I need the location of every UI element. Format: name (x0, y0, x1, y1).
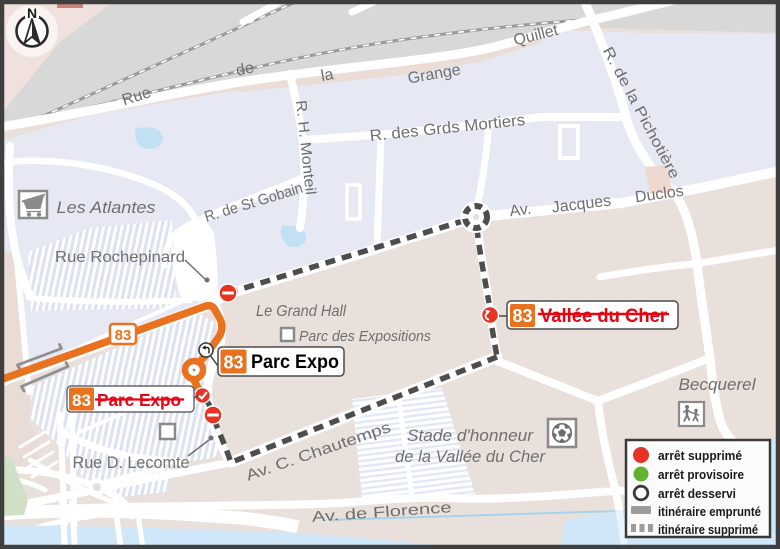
svg-text:Parc Expo: Parc Expo (251, 352, 339, 373)
svg-text:Parc des Expositions: Parc des Expositions (299, 328, 431, 345)
svg-text:de: de (235, 59, 256, 79)
svg-text:Rue D. Lecomte: Rue D. Lecomte (73, 453, 190, 472)
svg-text:arrêt provisoire: arrêt provisoire (658, 468, 744, 482)
svg-text:Le Grand Hall: Le Grand Hall (256, 303, 346, 320)
svg-text:Les Atlantes: Les Atlantes (57, 198, 157, 217)
svg-text:de la Vallée du Cher: de la Vallée du Cher (395, 447, 546, 466)
svg-text:83: 83 (512, 306, 532, 326)
svg-text:83: 83 (223, 353, 243, 373)
svg-text:arrêt supprimé: arrêt supprimé (658, 449, 742, 463)
svg-text:Stade d'honneur: Stade d'honneur (407, 426, 534, 445)
svg-text:Becquerel: Becquerel (679, 375, 757, 394)
svg-text:Av.: Av. (509, 201, 533, 221)
svg-text:Rue Rochepinard: Rue Rochepinard (55, 249, 185, 266)
svg-text:arrêt desservi: arrêt desservi (658, 487, 736, 501)
svg-text:Vallée du Cher: Vallée du Cher (540, 306, 668, 327)
svg-text:83: 83 (115, 327, 132, 344)
svg-text:83: 83 (72, 391, 91, 410)
svg-text:itinéraire emprunté: itinéraire emprunté (658, 505, 761, 519)
svg-text:itinéraire supprimé: itinéraire supprimé (658, 523, 758, 537)
